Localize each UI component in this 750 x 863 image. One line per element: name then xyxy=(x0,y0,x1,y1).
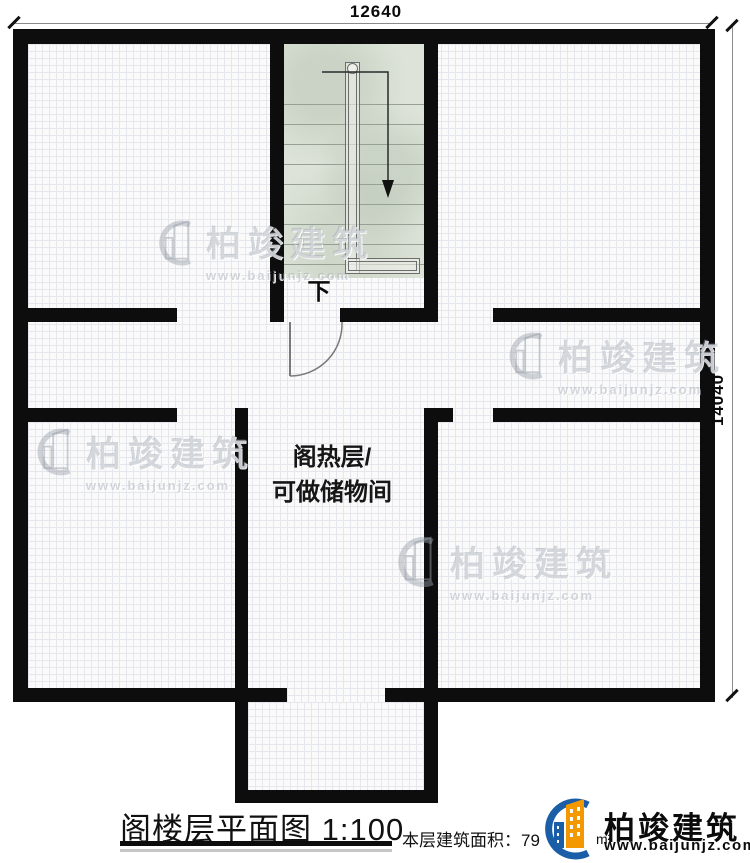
watermark-url: www.baijunjz.com xyxy=(86,478,254,493)
watermark-name: 柏竣建筑 xyxy=(206,216,374,267)
watermark-url: www.baijunjz.com xyxy=(450,588,618,603)
watermark: 柏竣建筑 www.baijunjz.com xyxy=(388,528,648,598)
brand-logo-icon xyxy=(534,796,602,860)
watermark-url: www.baijunjz.com xyxy=(558,382,726,397)
floor-plan-canvas: 12640 14040 下 阁热层/ 可做储物间 柏竣建筑 www.baijun… xyxy=(0,0,750,863)
title-underline-shadow xyxy=(120,849,392,852)
watermark-name: 柏竣建筑 xyxy=(450,536,618,587)
dimension-line-top xyxy=(14,23,712,24)
stair-direction-arrowhead xyxy=(382,180,394,198)
floor-area-text: 本层建筑面积：79 xyxy=(402,826,540,851)
door-swing-arc xyxy=(290,322,342,376)
floor-area-label: 本层建筑面积： xyxy=(402,831,521,850)
brand-logo-icon xyxy=(388,530,446,594)
watermark-url: www.baijunjz.com xyxy=(206,268,374,283)
watermark-name: 柏竣建筑 xyxy=(86,426,254,477)
brand-website: www.baijunjz.com xyxy=(604,837,750,854)
watermark: 柏竣建筑 www.baijunjz.com xyxy=(500,324,750,388)
watermark: 柏竣建筑 www.baijunjz.com xyxy=(28,420,288,484)
title-underline xyxy=(120,841,392,846)
brand-logo-icon xyxy=(500,326,554,386)
brand-logo-icon xyxy=(28,422,82,482)
stair-direction-line xyxy=(322,72,388,180)
watermark-name: 柏竣建筑 xyxy=(558,330,726,381)
dimension-width-label: 12640 xyxy=(330,2,422,22)
brand-logo-icon xyxy=(150,214,202,272)
watermark: 柏竣建筑 www.baijunjz.com xyxy=(150,212,410,276)
